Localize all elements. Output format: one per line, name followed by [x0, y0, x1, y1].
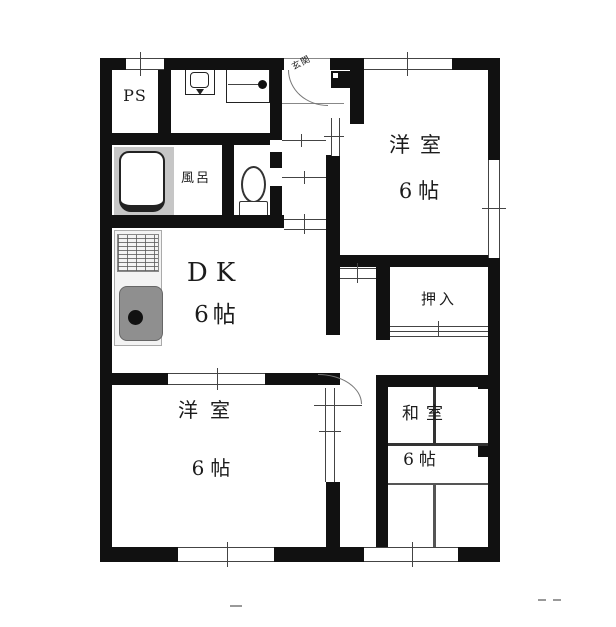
window-tick: [227, 542, 228, 567]
sink-drain-icon: [128, 310, 143, 325]
washing-machine-icon: [190, 72, 209, 88]
window: [178, 547, 274, 562]
sliding-door-tick: [319, 431, 341, 432]
wall: [100, 58, 112, 562]
window: [126, 58, 164, 70]
hall-door-arc: [318, 374, 362, 404]
wall: [100, 547, 178, 562]
toilet-bowl-icon: [241, 166, 266, 203]
sliding-door-tick: [304, 214, 305, 234]
fusuma-tick: [438, 321, 439, 337]
window: [364, 58, 452, 70]
hall-door-leaf: [314, 405, 362, 406]
shoe-cabinet-notch: [333, 73, 338, 78]
sliding-door: [284, 219, 326, 230]
window-tick: [412, 542, 413, 567]
label-closet: 押入: [398, 292, 480, 308]
wall: [350, 70, 364, 124]
wall-pillar: [478, 375, 488, 389]
tatami-line: [433, 485, 436, 547]
window-tick: [407, 52, 408, 76]
window-tick: [140, 52, 141, 76]
wall: [270, 186, 282, 215]
label-western-bottom-name: 洋室: [162, 400, 258, 421]
floorplan: PS 玄関 風呂 DK 6帖 洋室 6帖 押入 洋室 6帖 和室 6帖: [0, 0, 616, 627]
tatami-line: [388, 443, 488, 446]
wall: [330, 58, 364, 70]
wall: [270, 152, 282, 168]
faucet-dot-icon: [258, 80, 267, 89]
window: [488, 160, 500, 258]
door-swing-tick: [304, 171, 305, 184]
wall: [158, 70, 171, 133]
wall: [164, 58, 284, 70]
wall: [112, 215, 270, 228]
wall: [488, 258, 500, 562]
wall: [326, 155, 340, 335]
wall: [270, 70, 282, 140]
label-bath: 風呂: [172, 172, 220, 186]
sliding-door: [340, 268, 376, 279]
stove-icon: [117, 234, 159, 272]
wall: [376, 255, 390, 340]
door-swing-line: [282, 140, 326, 141]
label-dk-name: DK: [172, 260, 258, 287]
wall: [488, 58, 500, 160]
wall: [340, 255, 488, 267]
label-western-top-name: 洋室: [374, 134, 466, 156]
window-tick: [482, 208, 506, 209]
dimension-dash: [230, 605, 242, 607]
bathtub-icon: [119, 151, 165, 212]
label-western-bottom-size: 6帖: [166, 458, 262, 479]
wall: [458, 547, 500, 562]
fusuma-line: [390, 331, 488, 332]
wall: [376, 375, 488, 387]
label-pipe-space: PS: [112, 88, 158, 105]
fusuma-line: [390, 326, 488, 327]
dimension-dash: [538, 599, 546, 601]
tatami-line: [388, 483, 488, 485]
wall: [112, 373, 168, 385]
wall: [326, 482, 340, 547]
wall: [222, 145, 234, 218]
label-japanese-size: 6帖: [380, 452, 464, 470]
wall: [270, 215, 284, 228]
window-tick: [217, 368, 218, 390]
sliding-door: [331, 118, 340, 156]
fusuma-line: [390, 336, 488, 337]
label-western-top-size: 6帖: [376, 180, 468, 202]
sliding-door-tick: [357, 263, 358, 283]
wall: [274, 547, 364, 562]
label-japanese-name: 和室: [384, 406, 468, 424]
label-dk-size: 6帖: [174, 303, 260, 327]
window: [364, 547, 458, 562]
drain-triangle-icon: [196, 89, 204, 95]
door-swing-tick: [301, 134, 302, 147]
dimension-dash: [553, 599, 561, 601]
sliding-door-tick: [324, 136, 344, 137]
wall: [112, 133, 270, 145]
